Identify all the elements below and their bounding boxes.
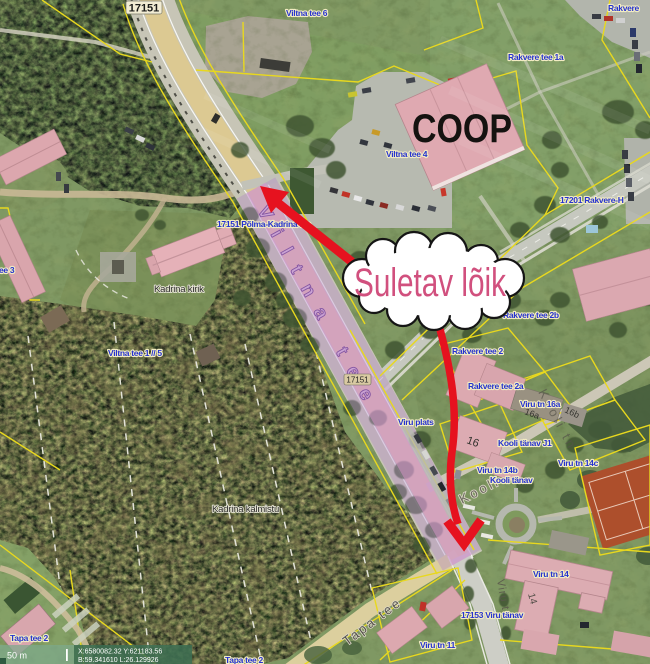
svg-text:Viru tn 14c: Viru tn 14c (558, 458, 599, 468)
svg-text:Kadrina kirik: Kadrina kirik (154, 284, 204, 295)
svg-text:COOP: COOP (412, 107, 512, 151)
svg-text:Rakvere tee 2a: Rakvere tee 2a (468, 381, 524, 391)
svg-text:Viru tn 14: Viru tn 14 (533, 569, 569, 579)
svg-text:Viltna tee 1 // 5: Viltna tee 1 // 5 (108, 348, 162, 358)
svg-text:ee 3: ee 3 (0, 265, 15, 275)
svg-text:17151: 17151 (129, 3, 160, 15)
svg-text:50 m: 50 m (7, 651, 27, 661)
svg-text:Viru tn 14b: Viru tn 14b (477, 465, 518, 475)
svg-text:Viru tn 11: Viru tn 11 (420, 640, 456, 650)
svg-text:Rakvere tee 2: Rakvere tee 2 (452, 346, 503, 356)
svg-text:Kooli tänav: Kooli tänav (490, 475, 533, 485)
svg-text:Kooli tänav J1: Kooli tänav J1 (498, 438, 552, 448)
svg-text:Rakvere: Rakvere (608, 3, 640, 13)
svg-text:Tapa tee 2: Tapa tee 2 (225, 655, 264, 664)
svg-text:B:59.341610 L:26.129926: B:59.341610 L:26.129926 (78, 657, 159, 664)
svg-text:Rakvere tee 2b: Rakvere tee 2b (503, 310, 559, 320)
svg-text:Viru plats: Viru plats (398, 417, 434, 427)
svg-text:Tapa tee 2: Tapa tee 2 (10, 633, 49, 643)
svg-text:X:6580082.32 Y:621183.56: X:6580082.32 Y:621183.56 (78, 649, 162, 656)
svg-text:17201 Rakvere-H: 17201 Rakvere-H (560, 195, 624, 205)
svg-text:Kadrina kalmistu: Kadrina kalmistu (212, 504, 279, 515)
svg-text:Rakvere tee 1a: Rakvere tee 1a (508, 52, 564, 62)
svg-text:Suletav lõik: Suletav lõik (354, 261, 507, 305)
svg-text:Viltna tee 6: Viltna tee 6 (286, 8, 328, 18)
svg-text:17153 Viru tänav: 17153 Viru tänav (461, 610, 524, 620)
svg-text:17151: 17151 (346, 376, 369, 385)
